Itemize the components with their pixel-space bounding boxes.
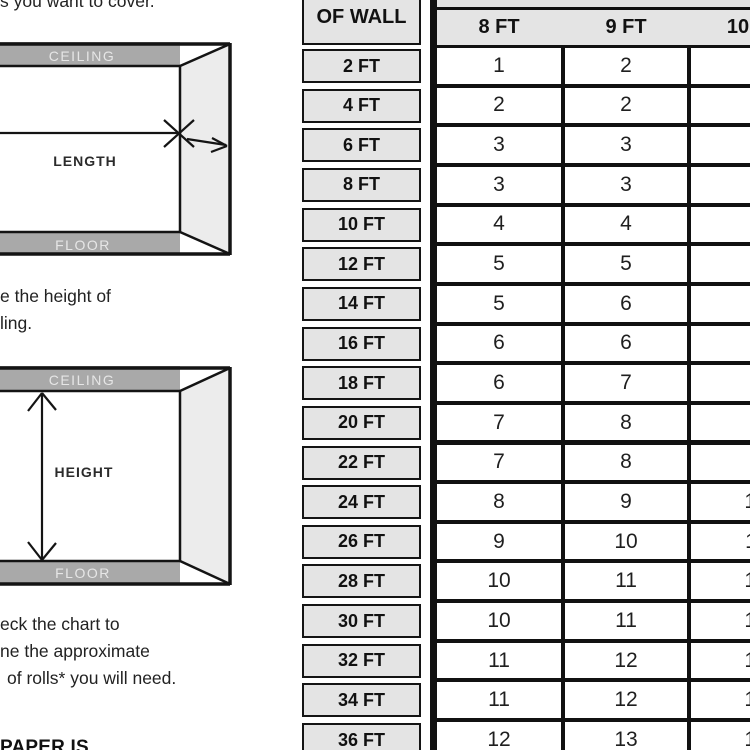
chart-cell: 6 [565, 286, 687, 322]
chart-cell: 4 [437, 207, 561, 243]
row-header-cell: 10 FT [302, 208, 421, 242]
chart-cell: 6 [565, 326, 687, 362]
chart-cell: 14 [691, 682, 750, 718]
chart-cell: 2 [691, 48, 750, 84]
chart-cell: 8 [691, 365, 750, 401]
chart-cell: 12 [691, 603, 750, 639]
rolls-chart: OF WALL 2 FT4 FT6 FT8 FT10 FT12 FT14 FT1… [302, 0, 750, 750]
floor-label: FLOOR [55, 237, 111, 253]
side-wall-shape [180, 44, 230, 254]
chart-cell: 5 [691, 207, 750, 243]
row-header-cell: 8 FT [302, 168, 421, 202]
chart-cell: 10 [437, 563, 561, 599]
row-header-cell: 4 FT [302, 89, 421, 123]
chart-cell: 3 [691, 88, 750, 124]
chart-cell: 12 [437, 722, 561, 750]
chart-cell: 5 [437, 286, 561, 322]
chart-cell: 6 [691, 246, 750, 282]
chart-cell: 14 [691, 722, 750, 750]
length-measurement-diagram: CEILING FLOOR LENGTH [0, 40, 234, 258]
chart-cell: 12 [565, 643, 687, 679]
chart-cell: 10 [691, 484, 750, 520]
chart-cell: 3 [565, 167, 687, 203]
chart-cell: 8 [565, 445, 687, 481]
length-label: LENGTH [53, 153, 117, 169]
chart-cell: 7 [437, 405, 561, 441]
wallpaper-measuring-guide: s you want to cover. CEILING FLOOR LENGT… [0, 0, 750, 750]
chart-cell: 11 [691, 524, 750, 560]
side-wall-shape [180, 368, 230, 584]
row-header-cell: 26 FT [302, 525, 421, 559]
row-header-cell: 32 FT [302, 644, 421, 678]
chart-cell: 3 [437, 167, 561, 203]
chart-cell: 13 [691, 643, 750, 679]
row-header-cell: 18 FT [302, 366, 421, 400]
chart-cell: 1 [437, 48, 561, 84]
row-header-cell: 22 FT [302, 446, 421, 480]
footer-heading-fragment: PAPER IS [0, 734, 89, 750]
check-chart-text: eck the chart to ne the approximate of r… [0, 611, 176, 692]
row-header-cell: 16 FT [302, 327, 421, 361]
intro-text-fragment: s you want to cover. [0, 0, 155, 12]
chart-cell: 11 [565, 603, 687, 639]
ceiling-label: CEILING [49, 48, 116, 64]
floor-label: FLOOR [55, 565, 111, 581]
ceiling-label: CEILING [49, 372, 116, 388]
data-grid: 8 FT 9 FT 10 FT 122223333334445556566667… [430, 0, 750, 750]
chart-cell: 11 [565, 563, 687, 599]
chart-cell: 3 [691, 127, 750, 163]
col-header-9ft: 9 FT [605, 16, 646, 39]
col-header-10ft: 10 FT [727, 16, 750, 39]
chart-cell: 6 [437, 326, 561, 362]
chart-cell: 9 [437, 524, 561, 560]
chart-cell: 9 [691, 405, 750, 441]
chart-cell: 11 [437, 643, 561, 679]
row-header-cell: 6 FT [302, 128, 421, 162]
chart-cell: 7 [437, 445, 561, 481]
chart-cell: 13 [565, 722, 687, 750]
row-header-cell: 24 FT [302, 485, 421, 519]
row-header-cell: 2 FT [302, 49, 421, 83]
header-divider-line [437, 7, 750, 10]
chart-cell: 2 [437, 88, 561, 124]
height-label: HEIGHT [55, 464, 114, 480]
chart-cell: 2 [565, 88, 687, 124]
chart-cell: 4 [691, 167, 750, 203]
height-arrow [28, 393, 56, 560]
row-header-cell: 30 FT [302, 604, 421, 638]
row-header-column: OF WALL 2 FT4 FT6 FT8 FT10 FT12 FT14 FT1… [302, 0, 421, 750]
chart-cell: 12 [691, 563, 750, 599]
chart-cell: 9 [565, 484, 687, 520]
chart-cell: 7 [565, 365, 687, 401]
chart-cell: 12 [565, 682, 687, 718]
chart-cell: 7 [691, 326, 750, 362]
column-header-row: 8 FT 9 FT 10 FT [437, 0, 750, 45]
row-header-cell: 14 FT [302, 287, 421, 321]
measure-height-text: e the height of ling. [0, 283, 111, 337]
chart-cell: 5 [565, 246, 687, 282]
chart-cell: 4 [565, 207, 687, 243]
height-measurement-diagram: CEILING FLOOR HEIGHT [0, 364, 234, 588]
chart-cell: 6 [691, 286, 750, 322]
chart-cell: 9 [691, 445, 750, 481]
row-header-cell: 12 FT [302, 247, 421, 281]
chart-cell: 5 [437, 246, 561, 282]
chart-cell: 3 [437, 127, 561, 163]
chart-cell: 8 [565, 405, 687, 441]
row-header-title: OF WALL [302, 0, 421, 45]
chart-cell: 8 [437, 484, 561, 520]
row-header-cell: 34 FT [302, 683, 421, 717]
chart-cell: 6 [437, 365, 561, 401]
chart-cell: 3 [565, 127, 687, 163]
col-header-8ft: 8 FT [478, 16, 519, 39]
chart-cell: 10 [565, 524, 687, 560]
chart-cell: 2 [565, 48, 687, 84]
chart-cell: 10 [437, 603, 561, 639]
grid-body: 1222233333344455565666676787897898910910… [437, 45, 750, 750]
chart-cell: 11 [437, 682, 561, 718]
row-header-cell: 20 FT [302, 406, 421, 440]
row-header-cell: 36 FT [302, 723, 421, 750]
row-header-cell: 28 FT [302, 564, 421, 598]
